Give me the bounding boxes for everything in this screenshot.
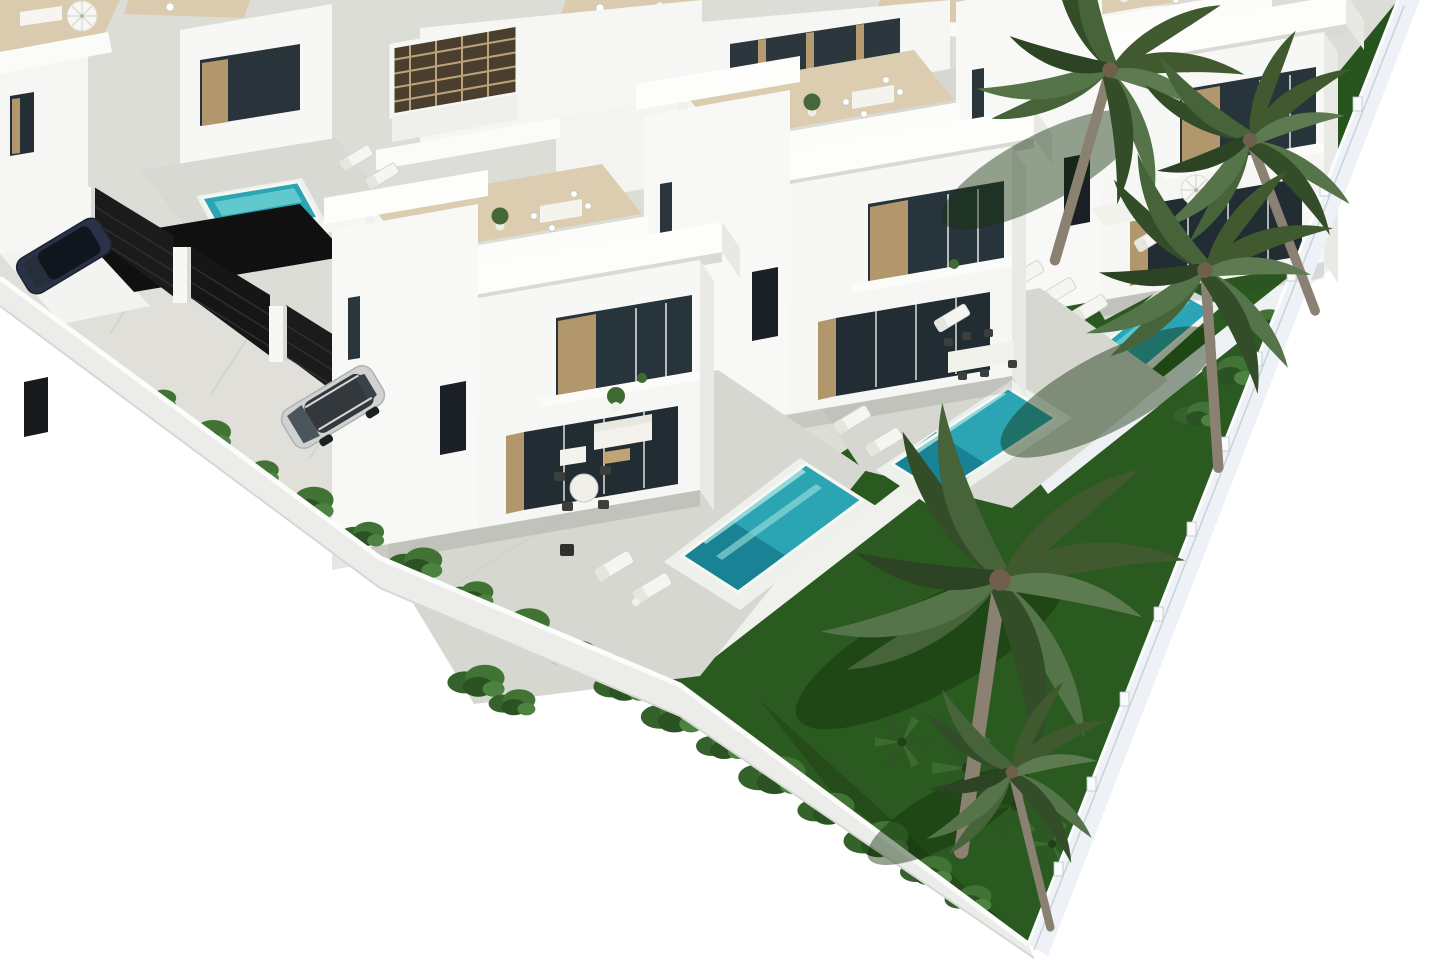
render-canvas xyxy=(0,0,1440,960)
villa-development-render xyxy=(0,0,1440,960)
